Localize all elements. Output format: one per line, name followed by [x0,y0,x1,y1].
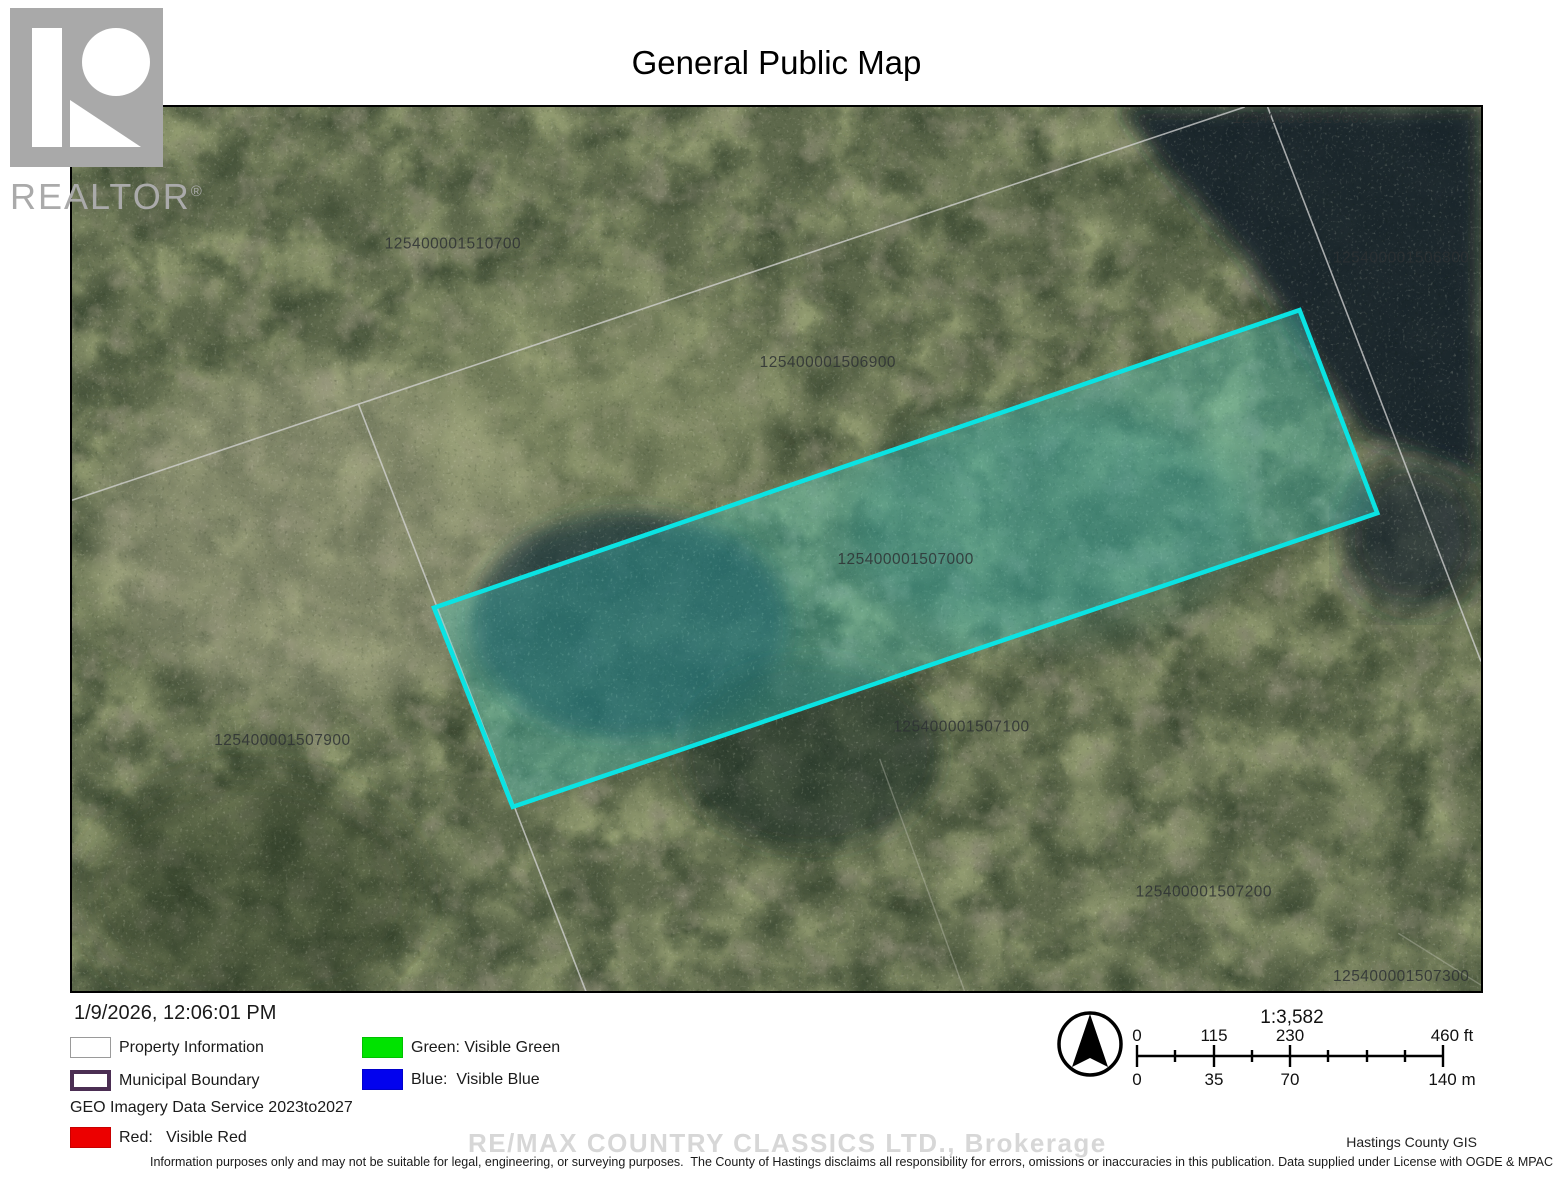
legend-row-municipal: Municipal Boundary [70,1070,260,1091]
geo-imagery-note: GEO Imagery Data Service 2023to2027 [70,1099,353,1117]
legend-row-red: Red: Visible Red [70,1127,247,1148]
red-swatch [70,1127,111,1148]
ft-115: 115 [1200,1026,1227,1045]
map-canvas: 125400001510700 125400001506900 12540000… [70,105,1483,993]
property-swatch [70,1037,111,1058]
ft-0: 0 [1132,1026,1141,1045]
brokerage-watermark: RE/MAX COUNTRY CLASSICS LTD., Brokerage [468,1128,1107,1159]
m-140: 140 m [1428,1070,1475,1089]
page-title: General Public Map [0,44,1553,82]
timestamp: 1/9/2026, 12:06:01 PM [74,1002,276,1025]
ft-460: 460 ft [1431,1026,1474,1045]
ft-230: 230 [1276,1026,1304,1045]
parcel-label: 125400001507900 [214,732,350,749]
parcel-label: 125400001510700 [385,235,521,252]
realtor-r-icon [10,8,163,167]
north-arrow-icon [1059,1013,1121,1075]
aerial-imagery: 125400001510700 125400001506900 12540000… [72,107,1481,991]
legend-row-property: Property Information [70,1037,264,1058]
scale-ratio: 1:3,582 [1260,1007,1323,1028]
m-70: 70 [1281,1070,1300,1089]
m-35: 35 [1205,1070,1224,1089]
legend-label-municipal: Municipal Boundary [119,1072,260,1090]
legend-label-property: Property Information [119,1039,264,1057]
parcel-label: 125400001507200 [1136,884,1272,901]
realtor-text: REALTOR [10,176,191,217]
parcel-label: 125400001506900 [760,354,896,371]
parcel-label: 125400001507300 [1333,968,1469,985]
scalebar-group: 1:3,582 0 115 230 460 ft 0 35 70 140 m [1040,995,1520,1105]
gis-credit: Hastings County GIS [1177,1134,1477,1150]
scale-ft-labels: 0 115 230 460 ft [1132,1026,1473,1045]
parcel-label: 125400001507100 [893,718,1029,735]
realtor-logo: REALTOR® [10,8,204,218]
legend-row-green: Green: Visible Green [362,1037,560,1058]
parcel-label: 125400001507000 [837,551,973,568]
municipal-swatch [70,1070,111,1091]
general-public-map-page: General Public Map [0,0,1553,1200]
parcel-label: 125400001510600 [1232,110,1368,127]
m-0: 0 [1132,1070,1141,1089]
scale-m-labels: 0 35 70 140 m [1132,1070,1475,1089]
scalebar-ticks [1137,1045,1443,1067]
legend-label-green: Green: Visible Green [411,1039,560,1057]
blue-swatch [362,1069,403,1090]
registered-symbol: ® [191,183,204,200]
green-swatch [362,1037,403,1058]
legend-label-red: Red: Visible Red [119,1129,247,1147]
legend-row-blue: Blue: Visible Blue [362,1069,540,1090]
parcel-label: 125400001506800 [1333,249,1469,266]
legend-label-blue: Blue: Visible Blue [411,1071,540,1089]
realtor-wordmark: REALTOR® [10,176,204,218]
